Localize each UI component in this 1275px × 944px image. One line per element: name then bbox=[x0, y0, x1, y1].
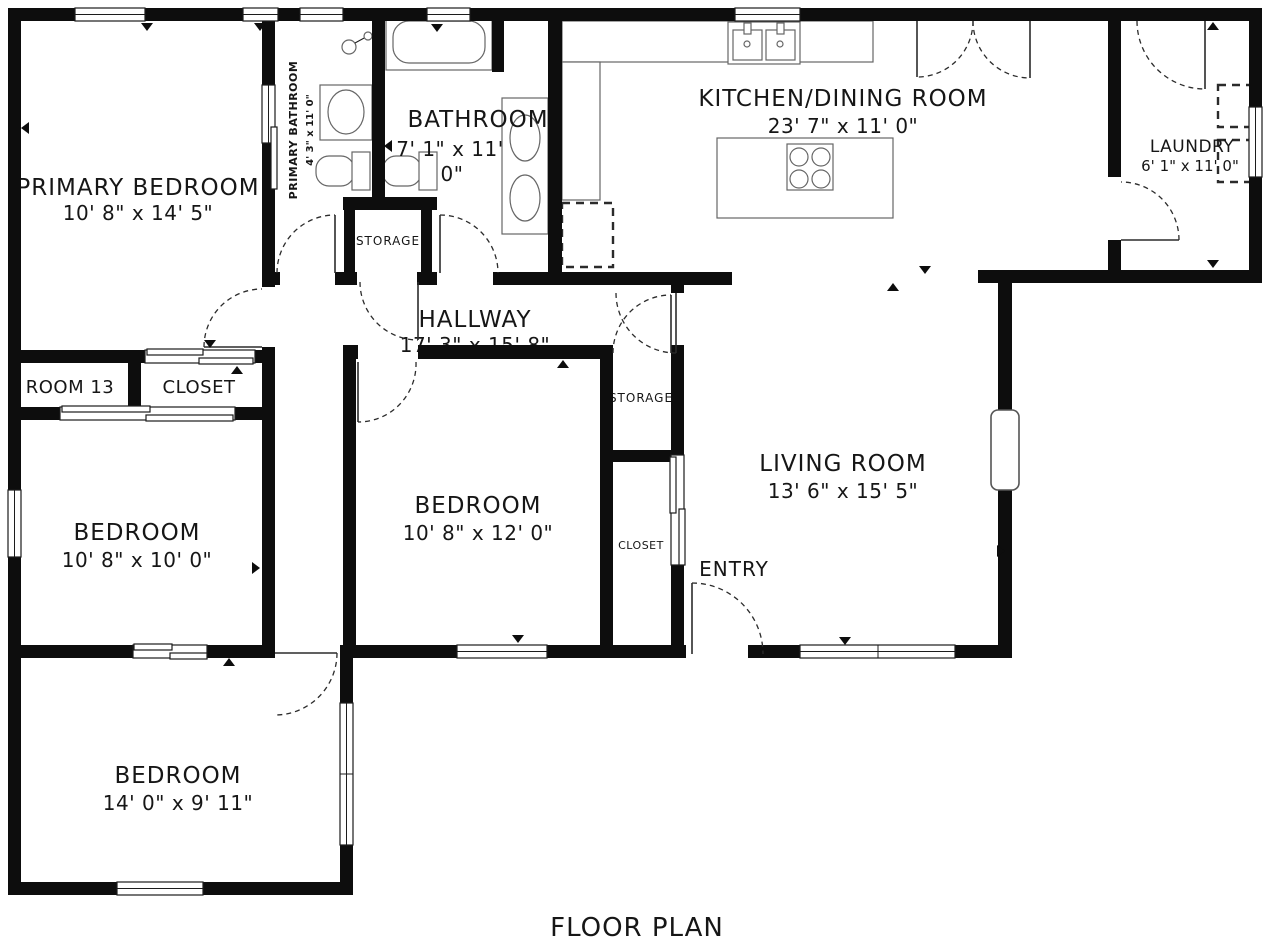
window bbox=[800, 645, 955, 658]
faucet-icon bbox=[342, 32, 372, 54]
window bbox=[427, 8, 470, 21]
primary-bath-sink-icon bbox=[320, 85, 372, 140]
window bbox=[300, 8, 343, 21]
door bbox=[616, 293, 676, 353]
fireplace-icon bbox=[991, 410, 1019, 490]
pocket-door bbox=[271, 127, 277, 189]
french-doors bbox=[917, 21, 1030, 78]
window bbox=[75, 8, 145, 21]
primary-bedroom-dims: 10' 8" x 14' 5" bbox=[63, 201, 214, 225]
door bbox=[440, 215, 498, 273]
storage-living-label: STORAGE bbox=[609, 391, 673, 405]
bedroom-bottom-label: BEDROOM bbox=[114, 763, 241, 789]
window bbox=[243, 8, 278, 21]
door bbox=[360, 282, 418, 340]
entry-door bbox=[692, 583, 763, 654]
laundry-label: LAUNDRY bbox=[1150, 137, 1234, 157]
window bbox=[117, 882, 203, 895]
floor-plan-drawing: PRIMARY BEDROOM 10' 8" x 14' 5" PRIMARY … bbox=[0, 0, 1275, 944]
sliding-door bbox=[60, 406, 235, 421]
laundry-dims: 6' 1" x 11' 0" bbox=[1141, 157, 1239, 175]
storage-hall-label: STORAGE bbox=[356, 234, 420, 248]
kitchen-dining-label: KITCHEN/DINING ROOM bbox=[698, 86, 987, 112]
closet-primary-label: CLOSET bbox=[163, 377, 236, 398]
stove-icon bbox=[787, 144, 833, 190]
living-room-label: LIVING ROOM bbox=[759, 451, 927, 477]
entry-label: ENTRY bbox=[699, 557, 769, 581]
window bbox=[8, 490, 21, 557]
door bbox=[204, 289, 262, 347]
window bbox=[735, 8, 800, 21]
bathroom-dims-line1: 7' 1" x 11' bbox=[396, 137, 504, 161]
double-sink-icon bbox=[728, 22, 800, 64]
door bbox=[358, 362, 416, 422]
page-title: FLOOR PLAN bbox=[550, 913, 724, 943]
room13-label: ROOM 13 bbox=[26, 377, 115, 398]
sliding-door bbox=[670, 455, 685, 565]
primary-bathroom-dims: 4' 3" x 11' 0" bbox=[305, 94, 316, 166]
living-room-dims: 13' 6" x 15' 5" bbox=[768, 479, 919, 503]
bedroom-bottom-dims: 14' 0" x 9' 11" bbox=[103, 791, 254, 815]
hallway-label: HALLWAY bbox=[418, 307, 531, 333]
walls bbox=[8, 8, 1262, 895]
window bbox=[1249, 107, 1262, 177]
sliding-door bbox=[145, 349, 255, 364]
door bbox=[1121, 182, 1179, 240]
door bbox=[1137, 21, 1205, 89]
bedroom-left-label: BEDROOM bbox=[73, 520, 200, 546]
floor-plan-page: PRIMARY BEDROOM 10' 8" x 14' 5" PRIMARY … bbox=[0, 0, 1275, 944]
bedroom-left-dims: 10' 8" x 10' 0" bbox=[62, 548, 213, 572]
bathroom-label: BATHROOM bbox=[407, 107, 548, 133]
labels-layer: PRIMARY BEDROOM 10' 8" x 14' 5" PRIMARY … bbox=[16, 61, 1238, 815]
primary-bathroom-label: PRIMARY BATHROOM bbox=[287, 61, 300, 200]
bathtub-icon bbox=[386, 14, 492, 70]
bedroom-center-label: BEDROOM bbox=[414, 493, 541, 519]
door bbox=[275, 653, 337, 715]
primary-bedroom-label: PRIMARY BEDROOM bbox=[16, 175, 259, 201]
window bbox=[457, 645, 547, 658]
door bbox=[277, 215, 335, 273]
sliding-door bbox=[133, 644, 207, 659]
kitchen-counter bbox=[562, 21, 873, 62]
kitchen-counter-arm bbox=[562, 62, 600, 200]
window bbox=[340, 703, 353, 845]
bedroom-center-dims: 10' 8" x 12' 0" bbox=[403, 521, 554, 545]
primary-bath-toilet-icon bbox=[316, 152, 370, 190]
bathroom-dims-line2: 0" bbox=[441, 162, 464, 186]
water-heater-icon bbox=[562, 203, 613, 267]
kitchen-dining-dims: 23' 7" x 11' 0" bbox=[768, 114, 919, 138]
closet-entry-label: CLOSET bbox=[618, 539, 664, 552]
door bbox=[613, 295, 671, 353]
